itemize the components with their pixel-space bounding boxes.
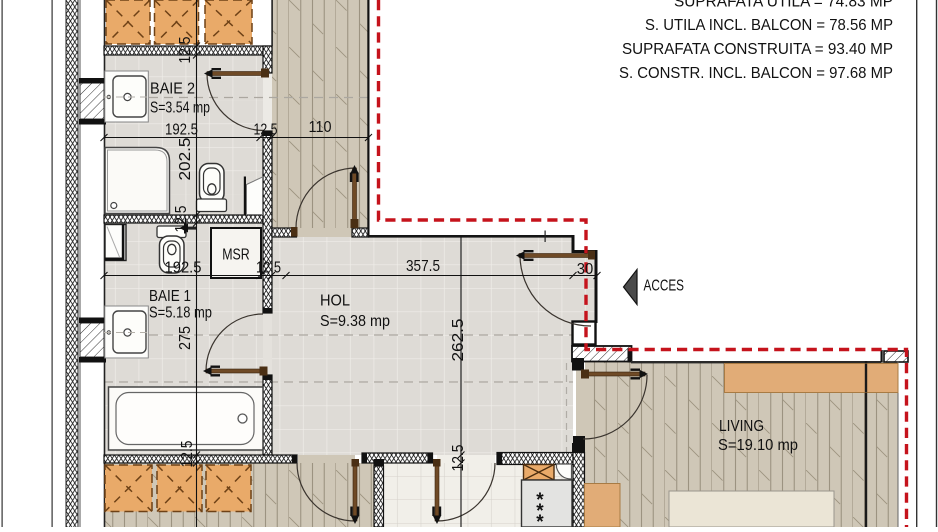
svg-text:S=19.10 mp: S=19.10 mp: [718, 437, 798, 454]
svg-text:110: 110: [309, 119, 332, 136]
svg-text:12.5: 12.5: [254, 122, 278, 139]
svg-text:HOL: HOL: [320, 293, 350, 310]
svg-text:ACCES: ACCES: [644, 278, 685, 295]
svg-text:30: 30: [577, 261, 594, 278]
svg-text:12.5: 12.5: [173, 206, 190, 233]
svg-text:262.5: 262.5: [450, 319, 467, 362]
svg-text:357.5: 357.5: [406, 258, 440, 275]
svg-text:BAIE 1: BAIE 1: [149, 288, 191, 305]
svg-text:MSR: MSR: [222, 247, 250, 264]
svg-text:S=3.54 mp: S=3.54 mp: [150, 100, 210, 117]
svg-text:S=9.38 mp: S=9.38 mp: [320, 313, 390, 330]
svg-text:BAIE 2: BAIE 2: [150, 81, 195, 98]
svg-text:*: *: [536, 512, 544, 527]
svg-text:202.5: 202.5: [177, 138, 194, 181]
svg-text:SUPRAFATA UTILA = 74.83 MP: SUPRAFATA UTILA = 74.83 MP: [674, 0, 893, 11]
svg-text:12.5: 12.5: [177, 37, 194, 64]
svg-text:192.5: 192.5: [165, 260, 202, 277]
svg-text:S. CONSTR. INCL. BALCON = 97.6: S. CONSTR. INCL. BALCON = 97.68 MP: [619, 65, 893, 82]
svg-text:S=5.18 mp: S=5.18 mp: [149, 305, 212, 322]
svg-text:SUPRAFATA CONSTRUITA = 93.40 M: SUPRAFATA CONSTRUITA = 93.40 MP: [622, 41, 893, 58]
svg-text:LIVING: LIVING: [719, 418, 764, 435]
svg-text:275: 275: [177, 326, 194, 350]
svg-text:192.5: 192.5: [165, 122, 198, 139]
svg-text:S. UTILA INCL. BALCON = 78.56: S. UTILA INCL. BALCON = 78.56 MP: [645, 17, 893, 34]
svg-text:12.5: 12.5: [179, 441, 196, 468]
svg-text:12.5: 12.5: [256, 260, 281, 277]
svg-text:12.5: 12.5: [450, 445, 467, 472]
